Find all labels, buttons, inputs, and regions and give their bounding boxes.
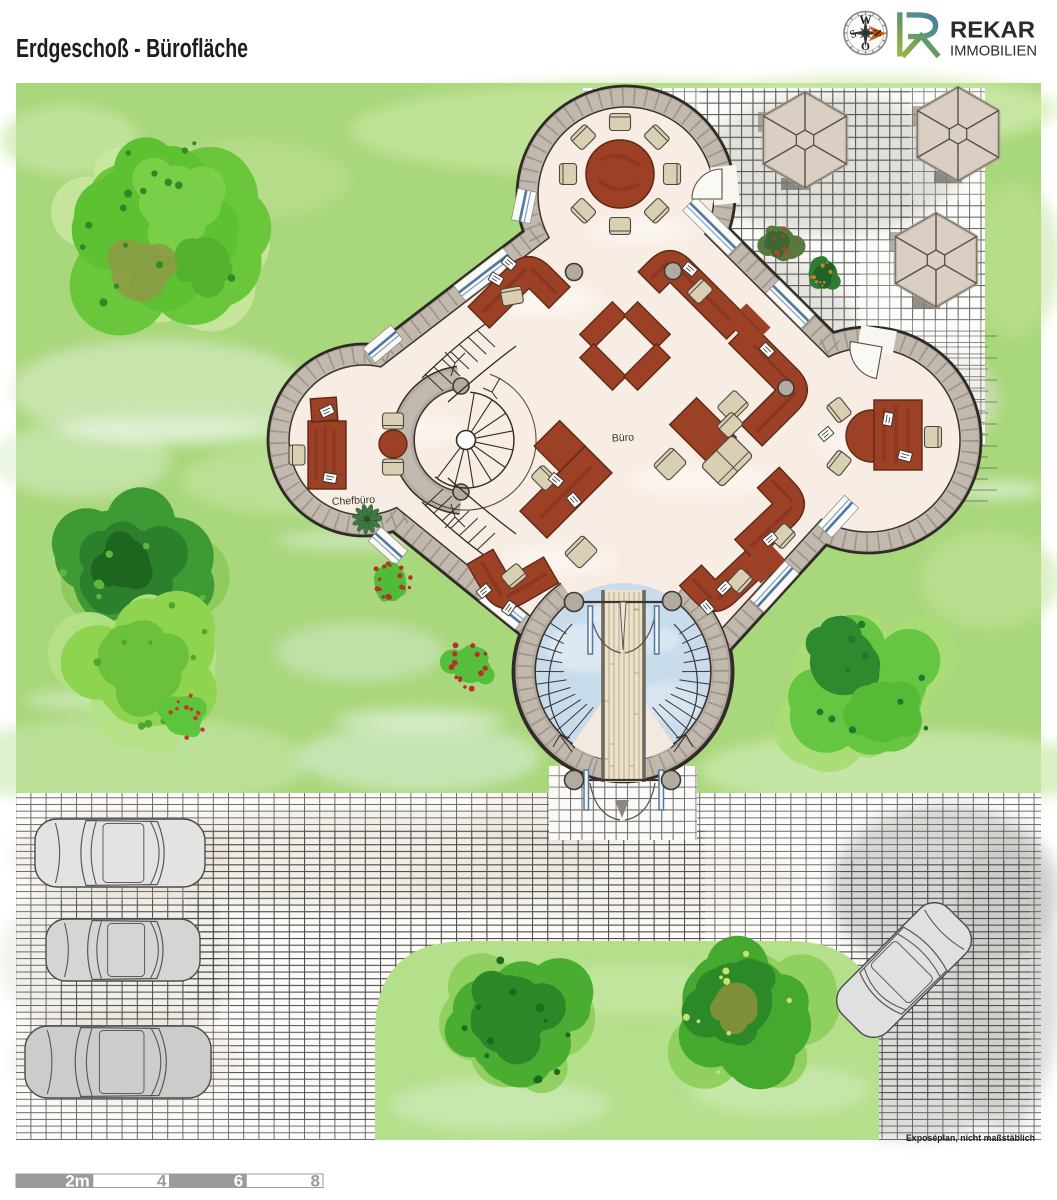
svg-text:4: 4 [157,1172,167,1191]
svg-text:REKAR: REKAR [950,17,1035,43]
svg-text:W: W [859,13,872,27]
svg-text:8: 8 [311,1172,320,1191]
svg-text:O: O [861,41,870,53]
svg-text:IMMOBILIEN: IMMOBILIEN [950,43,1037,60]
svg-text:Chefbüro: Chefbüro [332,494,376,508]
svg-text:6: 6 [234,1172,243,1191]
svg-text:N: N [871,29,882,37]
svg-text:Exposéplan, nicht maßstäblich: Exposéplan, nicht maßstäblich [906,1133,1035,1143]
svg-text:Büro: Büro [612,431,635,444]
svg-text:2m: 2m [65,1172,90,1191]
svg-text:Erdgeschoß - Bürofläche: Erdgeschoß - Bürofläche [16,35,248,63]
